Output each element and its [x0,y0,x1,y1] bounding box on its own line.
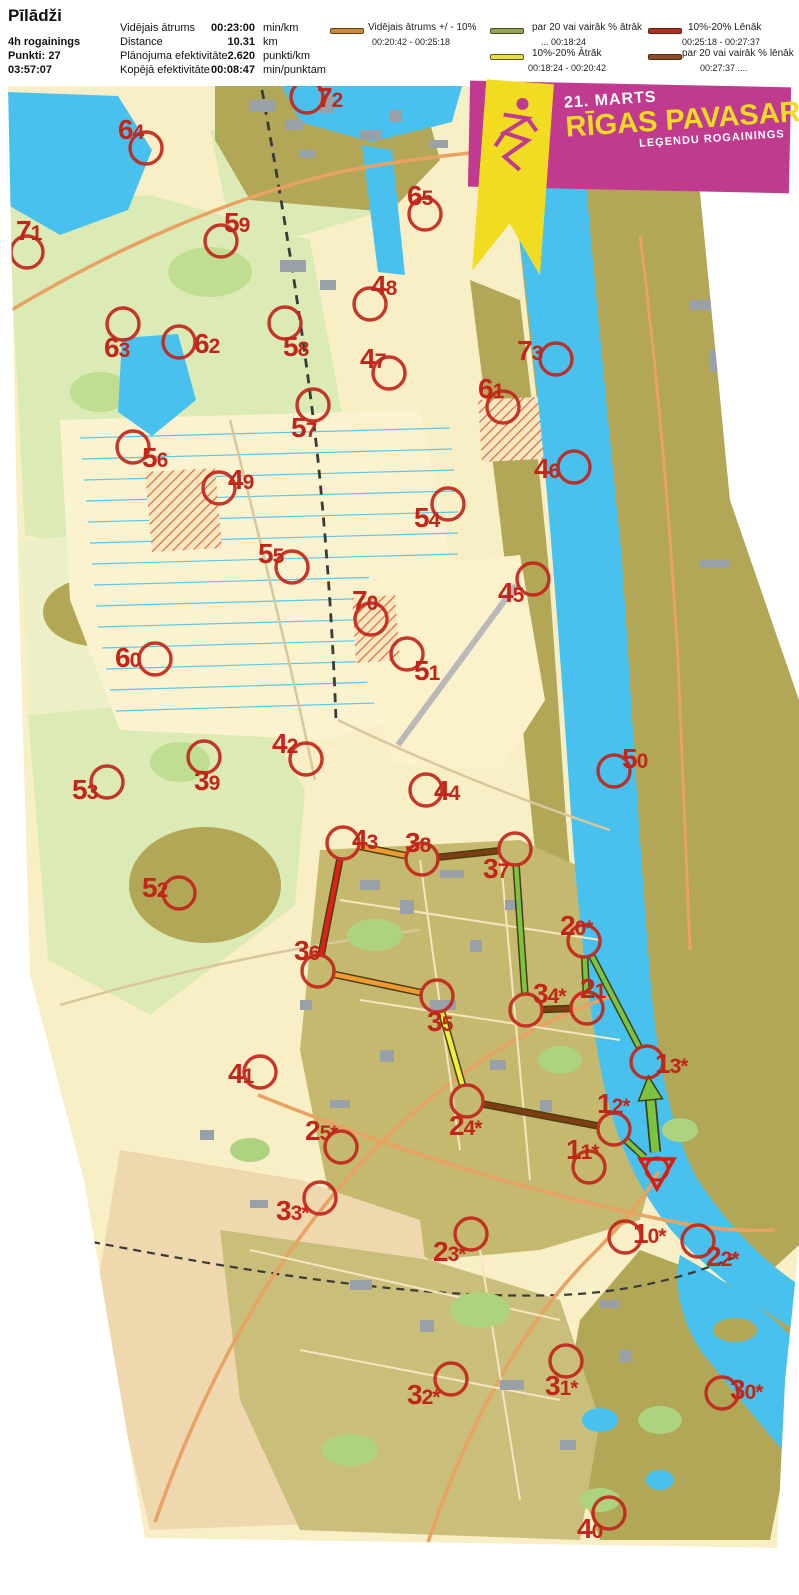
stat-value-plan-eff: 2.620 [120,50,255,62]
legend-range-avg: 00:20:42 - 00:25:18 [372,37,450,47]
stat-unit-total-eff: min/punktam [263,64,326,76]
legend-swatch-slow10 [648,28,682,34]
legend-swatch-slow20 [648,54,682,60]
legend-label-fast10: 10%-20% Ātrāk [532,48,601,59]
stat-value-total-eff: 00:08:47 [120,64,255,76]
report-header: Pīlādži 4h rogainings Punkti: 27 03:57:0… [0,0,799,86]
stat-value-avg-pace: 00:23:00 [120,22,255,34]
stat-unit-avg-pace: min/km [263,22,298,34]
event-banner: 21. MARTS RĪGAS PAVASARA LEĢENDU ROGAINI… [468,81,791,194]
map-base-art: 7264657159486362587347576156494654554570… [0,80,799,1555]
legend-range-slow10: 00:25:18 - 00:27:37 [682,37,760,47]
event-format: 4h rogainings [8,36,80,48]
rogaining-map: 7264657159486362587347576156494654554570… [0,0,799,1590]
legend-label-avg: Vidējais ātrums +/ - 10% [368,22,476,33]
legend-range-fast20: ... 00:18:24 [541,37,586,47]
runner-icon [477,79,554,204]
total-time: 03:57:07 [8,64,52,76]
runner-name: Pīlādži [8,6,62,26]
points-total: Punkti: 27 [8,50,61,62]
legend-label-slow20: par 20 vai vairāk % lēnāk [682,48,794,59]
map-canvas: 7264657159486362587347576156494654554570… [0,0,799,1590]
legend-swatch-fast20 [490,28,524,34]
legend-swatch-fast10 [490,54,524,60]
stat-value-distance: 10.31 [120,36,255,48]
legend-swatch-avg [330,28,364,34]
legend-range-fast10: 00:18:24 - 00:20:42 [528,63,606,73]
legend-label-slow10: 10%-20% Lēnāk [688,22,761,33]
legend-range-slow20: 00:27:37 .... [700,63,748,73]
stat-unit-distance: km [263,36,278,48]
legend-label-fast20: par 20 vai vairāk % ātrāk [532,22,642,33]
stat-unit-plan-eff: punkti/km [263,50,310,62]
